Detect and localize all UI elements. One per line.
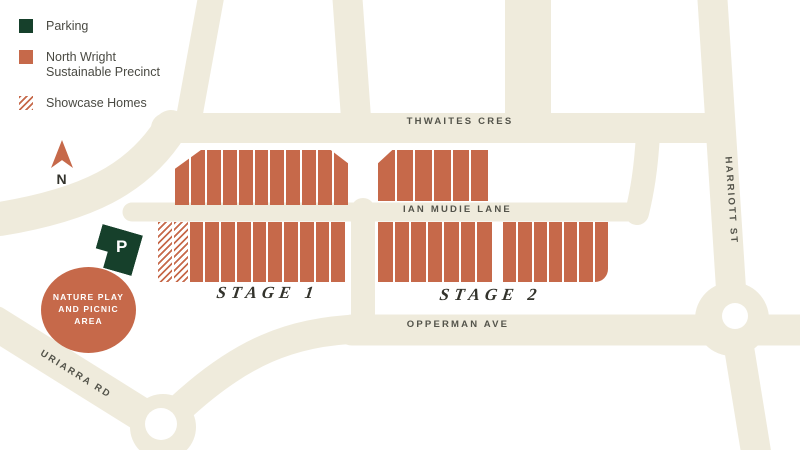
lot [221,222,235,282]
lot [518,222,531,282]
roundabout-west-island [145,408,177,440]
lot [223,150,237,205]
precinct-map: ParkingNorth Wright Sustainable Precinct… [0,0,800,450]
block-stage1-south [158,222,345,282]
road-top-left-stub [189,0,212,118]
lot [453,150,470,201]
lot [434,150,451,201]
lot [253,222,267,282]
lot [397,150,414,201]
lot [331,222,345,282]
street-label-opperman: OPPERMAN AVE [378,319,538,330]
southwest-curve-road [178,329,360,410]
street-label-thwaites: THWAITES CRES [380,116,540,127]
lot [595,222,608,282]
block-stage2-south-west [378,222,492,282]
lot [378,222,393,282]
lot [503,222,516,282]
stage1-label: STAGE 1 [194,283,342,303]
block-stage2-south-east [503,222,608,282]
lot [207,150,221,205]
lot [579,222,592,282]
legend: ParkingNorth Wright Sustainable Precinct… [19,19,166,128]
street-label-ian-mudie: IAN MUDIE LANE [380,204,535,215]
lot [302,150,316,205]
lot [444,222,459,282]
legend-item-showcase: Showcase Homes [19,96,166,110]
lot [564,222,577,282]
parking-marker-letter: P [106,237,127,263]
showcase-home-lot [158,222,172,282]
nature-play-line1: NATURE PLAY [53,292,124,304]
legend-label-parking: Parking [46,19,88,33]
lot [461,222,476,282]
lot [477,222,492,282]
lot [318,150,332,205]
nature-play-line2: AND PICNIC [58,304,119,316]
road-top-middle-stub [347,0,356,118]
lot [284,222,298,282]
lot [300,222,314,282]
block-stage1-north [175,150,348,205]
showcase-home-lot [174,222,188,282]
lot [205,222,219,282]
north-label: N [49,171,75,187]
lot [191,150,205,205]
lot [268,222,282,282]
legend-item-parking: Parking [19,19,166,33]
legend-label-precinct: North Wright Sustainable Precinct [46,50,166,79]
east-connector-road [637,134,648,213]
lot [415,150,432,201]
lot [316,222,330,282]
block-stage2-north [378,150,488,201]
lot [255,150,269,205]
lot [237,222,251,282]
legend-swatch-precinct [19,50,33,64]
lot [534,222,547,282]
lot [190,222,204,282]
lot [411,222,426,282]
roundabout-east-island [722,303,748,329]
legend-swatch-parking [19,19,33,33]
nature-play-line3: AREA [74,316,103,328]
lot [286,150,300,205]
lot [239,150,253,205]
lot [395,222,410,282]
lot [471,150,488,201]
legend-item-precinct: North Wright Sustainable Precinct [19,50,166,79]
legend-label-showcase: Showcase Homes [46,96,147,110]
nature-play-area: NATURE PLAY AND PICNIC AREA [41,267,136,353]
lot [270,150,284,205]
lot [428,222,443,282]
stage2-label: STAGE 2 [417,285,565,305]
lot [549,222,562,282]
legend-swatch-showcase [19,96,33,110]
